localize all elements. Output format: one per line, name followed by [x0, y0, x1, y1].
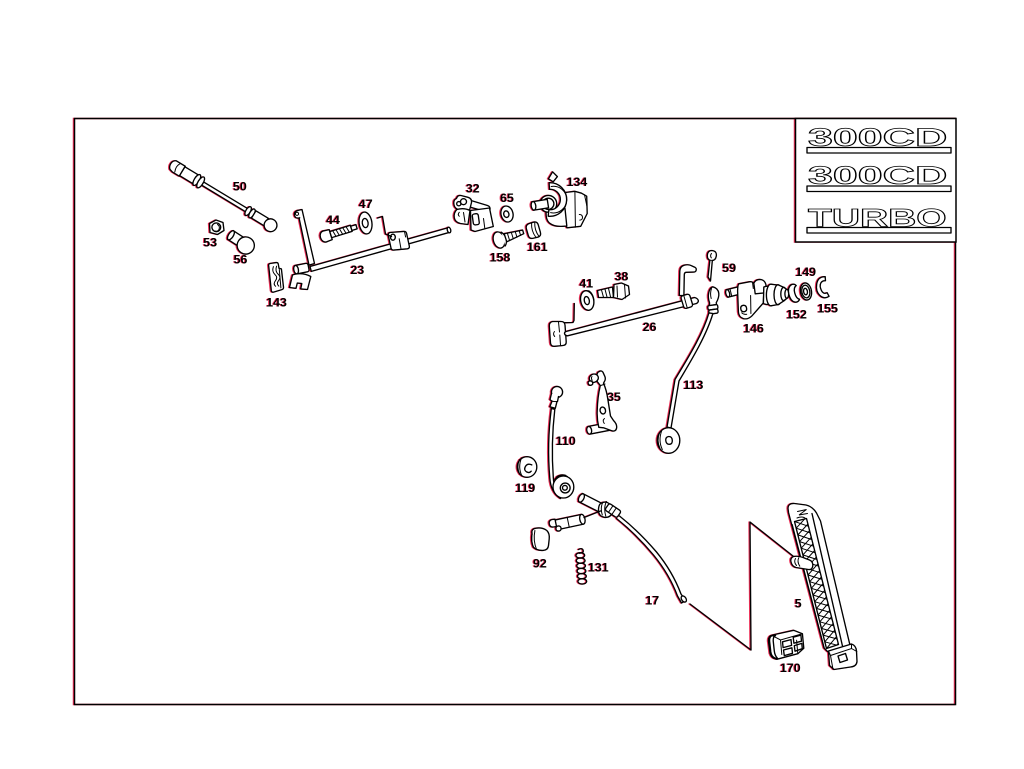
svg-text:92: 92	[533, 556, 547, 570]
svg-text:131: 131	[588, 561, 609, 575]
svg-text:44: 44	[326, 213, 340, 227]
svg-text:41: 41	[579, 276, 593, 290]
svg-text:47: 47	[359, 197, 373, 211]
svg-text:26: 26	[643, 320, 657, 334]
svg-text:35: 35	[607, 390, 621, 404]
svg-text:5: 5	[795, 596, 802, 610]
svg-text:113: 113	[683, 378, 703, 392]
svg-text:134: 134	[567, 175, 588, 189]
svg-text:152: 152	[786, 308, 807, 322]
svg-text:158: 158	[490, 251, 511, 265]
svg-text:143: 143	[266, 295, 287, 309]
svg-text:50: 50	[233, 180, 247, 194]
svg-text:300CD: 300CD	[808, 161, 947, 189]
svg-text:119: 119	[515, 481, 535, 495]
svg-text:110: 110	[556, 434, 576, 448]
svg-text:65: 65	[500, 191, 514, 205]
svg-text:17: 17	[645, 593, 659, 607]
svg-text:23: 23	[351, 263, 365, 277]
svg-text:59: 59	[722, 261, 736, 275]
svg-text:38: 38	[615, 269, 629, 283]
svg-text:32: 32	[466, 182, 480, 196]
svg-text:53: 53	[203, 235, 217, 249]
svg-text:155: 155	[817, 301, 838, 315]
svg-text:170: 170	[780, 661, 801, 675]
svg-text:56: 56	[234, 253, 248, 267]
svg-text:149: 149	[795, 265, 816, 279]
svg-text:161: 161	[527, 240, 548, 254]
svg-text:146: 146	[743, 322, 764, 336]
